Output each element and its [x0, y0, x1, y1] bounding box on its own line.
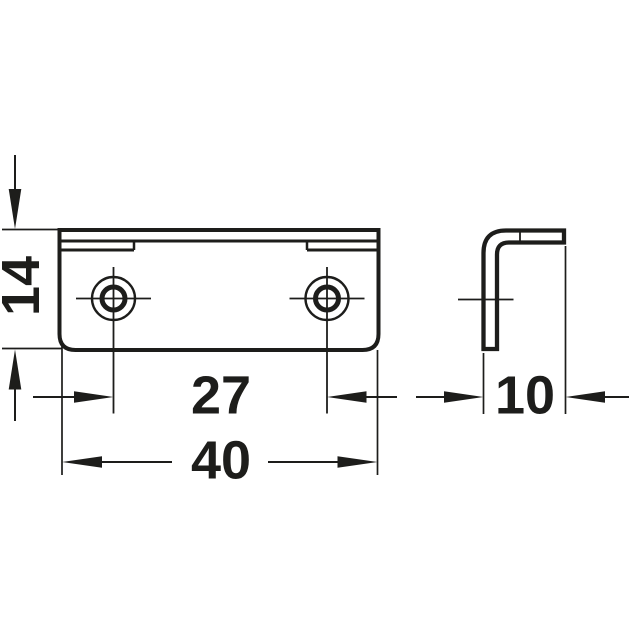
arrowhead-left-icon	[62, 456, 102, 467]
dim-depth-label: 10	[495, 366, 555, 426]
arrowhead-left-icon	[566, 391, 606, 402]
dim-height-label: 14	[0, 256, 51, 316]
arrowhead-right-icon	[444, 391, 484, 402]
profile-outline	[484, 231, 565, 350]
technical-drawing-page: 14 27 40 10	[0, 0, 630, 630]
arrowhead-up-icon	[9, 350, 22, 390]
technical-drawing-canvas: 14 27 40 10	[0, 0, 630, 630]
arrowhead-left-icon	[327, 391, 367, 402]
dimension-height: 14	[0, 155, 62, 421]
arrowhead-right-icon	[338, 456, 378, 467]
dim-width-label: 40	[191, 431, 251, 491]
dim-hole-spacing-label: 27	[191, 366, 251, 426]
side-view	[458, 229, 564, 349]
dimension-hole-spacing: 27	[33, 366, 397, 426]
dimension-depth: 10	[416, 246, 629, 426]
arrowhead-down-icon	[9, 189, 22, 229]
arrowhead-right-icon	[74, 391, 114, 402]
